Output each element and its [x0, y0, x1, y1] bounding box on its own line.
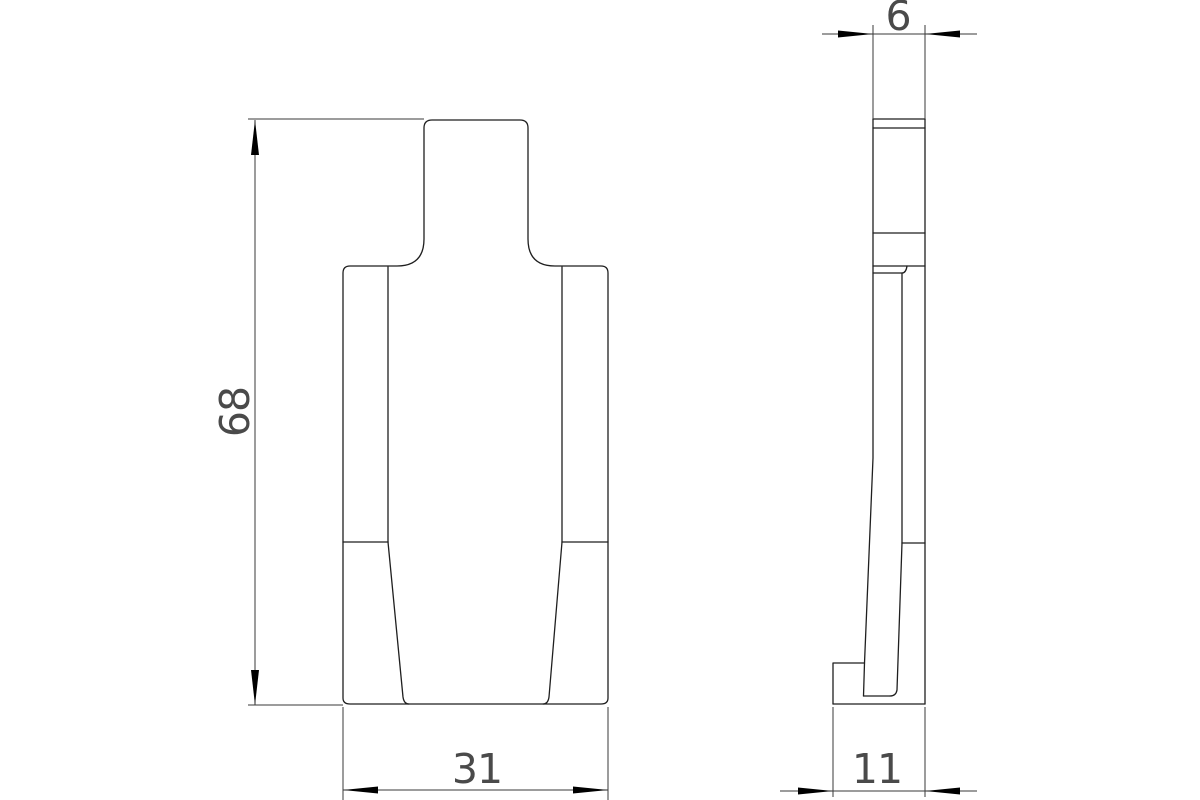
dim-front-height: 68 [211, 119, 424, 705]
front-taper-edge-right [543, 542, 562, 704]
dim-value-width: 31 [452, 745, 502, 793]
side-view [833, 119, 925, 704]
dim-arrow-left-tip [925, 31, 960, 38]
dim-value-height: 68 [211, 387, 259, 437]
dim-arrow-right-tip [798, 788, 833, 795]
dim-arrow-right [573, 787, 608, 794]
dim-arrow-down [251, 670, 259, 705]
side-taper-edge [890, 543, 902, 696]
side-ledge-line [873, 266, 907, 273]
side-left-edge [864, 119, 874, 696]
drawing-canvas: 68 31 [0, 0, 1200, 800]
dim-front-width: 31 [343, 707, 608, 800]
dim-side-top-thickness: 6 [822, 0, 977, 119]
dim-arrow-left [343, 787, 378, 794]
front-taper-edge-left [388, 542, 409, 704]
dim-arrow-left-tip [925, 788, 960, 795]
front-view [343, 120, 608, 704]
dim-value-base-thickness: 11 [852, 745, 902, 793]
dim-arrow-right-tip [838, 31, 873, 38]
side-base-step [833, 663, 865, 704]
dim-value-top-thickness: 6 [885, 0, 910, 40]
dim-arrow-up [251, 120, 259, 155]
front-outline [343, 120, 608, 704]
dim-side-base-thickness: 11 [780, 707, 977, 797]
